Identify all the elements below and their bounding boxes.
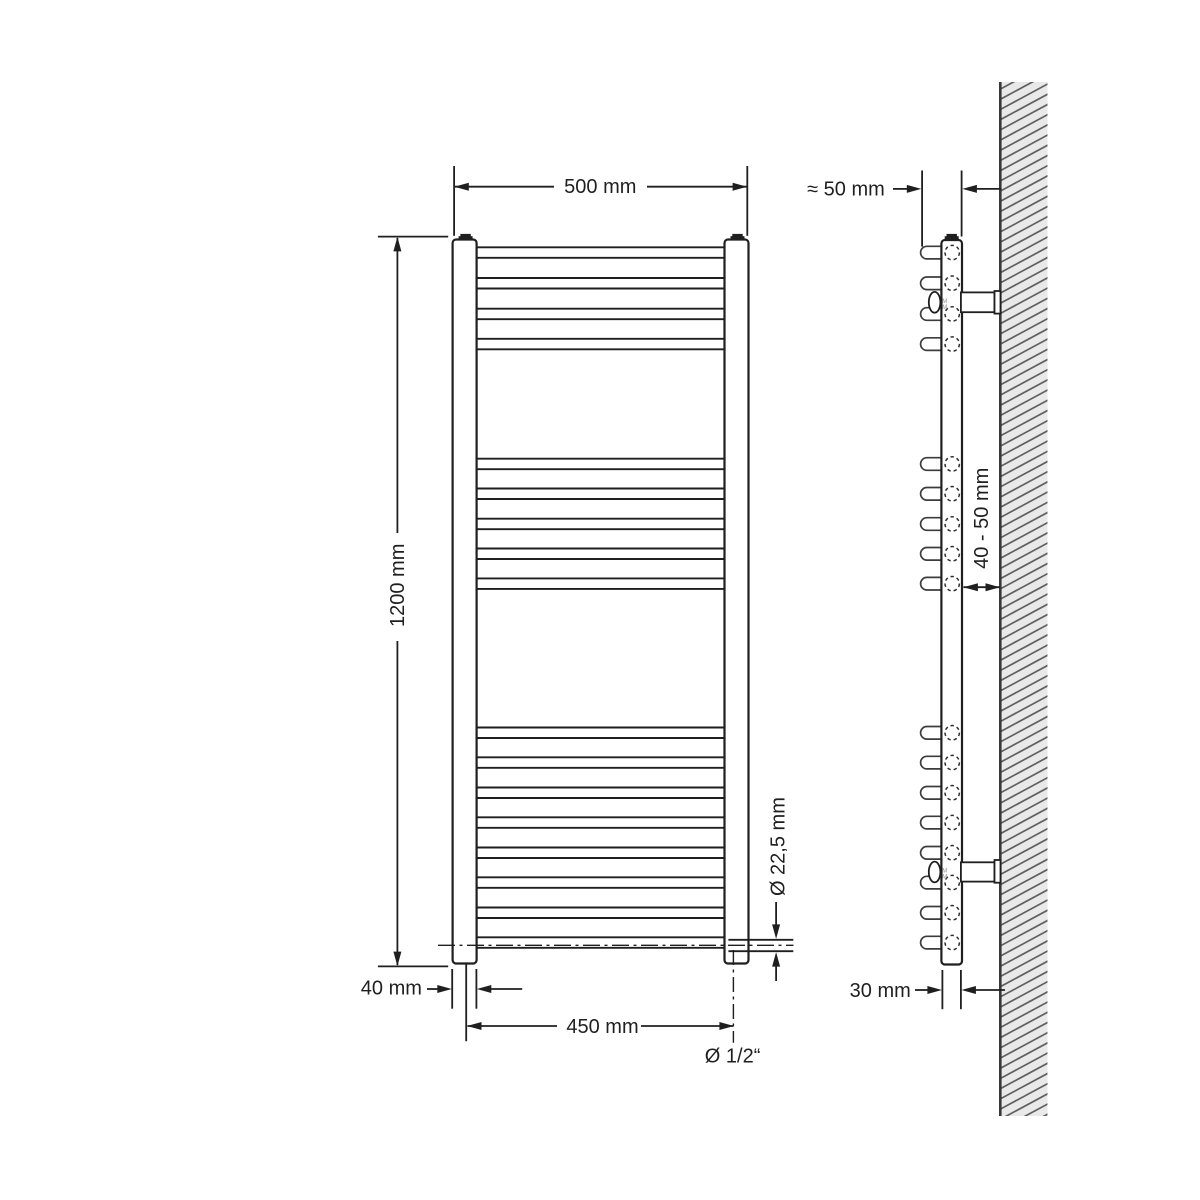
svg-text:Ø 22,5 mm: Ø 22,5 mm <box>768 797 790 896</box>
svg-text:40 mm: 40 mm <box>361 978 422 1000</box>
svg-text:M: M <box>942 875 947 881</box>
svg-text:40 - 50 mm: 40 - 50 mm <box>971 468 993 569</box>
svg-text:M: M <box>942 305 947 311</box>
svg-text:450 mm: 450 mm <box>566 1016 638 1038</box>
svg-text:30 mm: 30 mm <box>850 980 911 1002</box>
svg-text:≈ 50 mm: ≈ 50 mm <box>807 178 885 200</box>
svg-text:1200 mm: 1200 mm <box>387 544 409 627</box>
svg-text:500 mm: 500 mm <box>564 176 636 198</box>
svg-text:Ø 1/2“: Ø 1/2“ <box>705 1046 761 1068</box>
